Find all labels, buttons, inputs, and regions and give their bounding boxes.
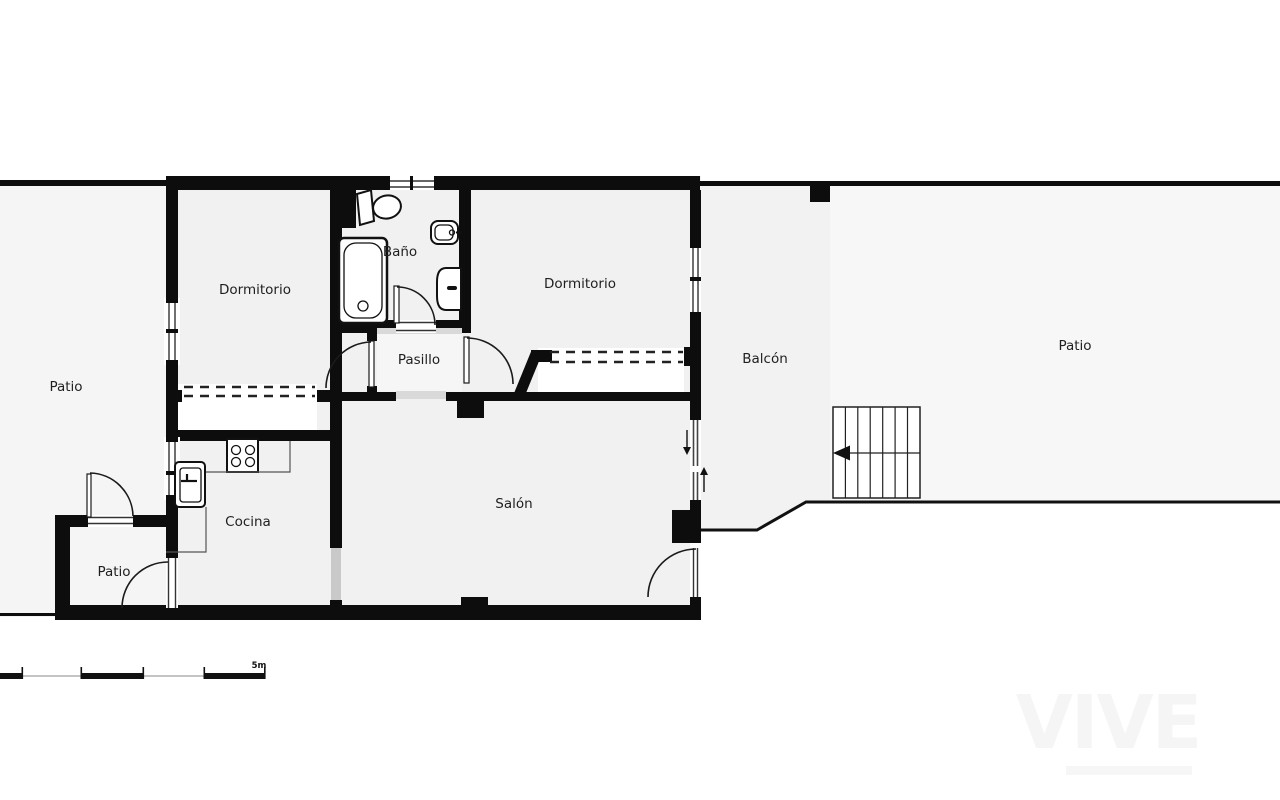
wall-segment bbox=[317, 390, 333, 402]
wall-segment bbox=[330, 392, 396, 401]
watermark-text: VIVE bbox=[1016, 680, 1201, 766]
room-label-cocina: Cocina bbox=[225, 514, 271, 530]
closet-strip-dorm1 bbox=[178, 384, 317, 430]
bathtub-icon bbox=[339, 238, 387, 323]
window bbox=[690, 243, 701, 317]
washbasin-icon bbox=[431, 221, 462, 244]
threshold-pasillo-salon bbox=[396, 391, 446, 399]
wall-segment bbox=[690, 190, 701, 243]
watermark: VIVE bbox=[1016, 680, 1201, 775]
patio-left-bottom-line bbox=[0, 613, 55, 616]
room-label-balcon: Balcón bbox=[742, 351, 788, 367]
wall-segment bbox=[810, 186, 830, 202]
window bbox=[386, 176, 438, 190]
floorplan-svg: Patio Dormitorio Baño Pasillo Dormitorio… bbox=[0, 0, 1280, 800]
wall-segment bbox=[342, 185, 356, 228]
stairs-icon bbox=[833, 407, 920, 498]
wall-segment bbox=[531, 350, 552, 362]
closet-strip-dorm2 bbox=[538, 348, 684, 392]
room-label-pasillo: Pasillo bbox=[398, 352, 440, 368]
opening-cocina-salon bbox=[331, 548, 341, 600]
wall-pillar bbox=[457, 392, 484, 418]
kitchen-sink-icon bbox=[175, 462, 205, 507]
wall-segment bbox=[367, 323, 377, 341]
wall-segment bbox=[55, 515, 70, 620]
room-label-patio-left: Patio bbox=[49, 379, 82, 395]
wall-segment bbox=[166, 190, 178, 298]
floorplan-canvas: Patio Dormitorio Baño Pasillo Dormitorio… bbox=[0, 0, 1280, 800]
wall-pillar bbox=[461, 597, 488, 620]
wall-segment bbox=[690, 317, 701, 420]
wall-segment bbox=[55, 605, 700, 620]
room-label-patio-right: Patio bbox=[1058, 338, 1091, 354]
wall-segment bbox=[133, 515, 178, 527]
stove-icon bbox=[227, 439, 258, 472]
room-label-patio-small: Patio bbox=[97, 564, 130, 580]
sliding-door-gap bbox=[690, 420, 701, 500]
window bbox=[164, 298, 180, 365]
wall-segment bbox=[700, 181, 1280, 186]
watermark-bar bbox=[1066, 766, 1192, 775]
wall-segment bbox=[166, 390, 182, 402]
wall-segment bbox=[516, 392, 700, 401]
room-label-dormitorio-2: Dormitorio bbox=[544, 276, 616, 292]
wall-segment bbox=[166, 500, 178, 558]
wall-pillar bbox=[672, 510, 700, 543]
scale-bar: 5m bbox=[0, 661, 267, 679]
floor-patio-left bbox=[0, 183, 166, 617]
room-label-bano: Baño bbox=[383, 244, 417, 260]
scale-label: 5m bbox=[252, 661, 267, 671]
threshold-entry bbox=[690, 543, 701, 548]
bidet-icon bbox=[437, 268, 461, 310]
wall-segment bbox=[684, 347, 693, 366]
room-label-salon: Salón bbox=[495, 496, 532, 512]
wall-segment bbox=[0, 180, 166, 186]
wall-segment bbox=[55, 515, 88, 527]
room-label-dormitorio-1: Dormitorio bbox=[219, 282, 291, 298]
